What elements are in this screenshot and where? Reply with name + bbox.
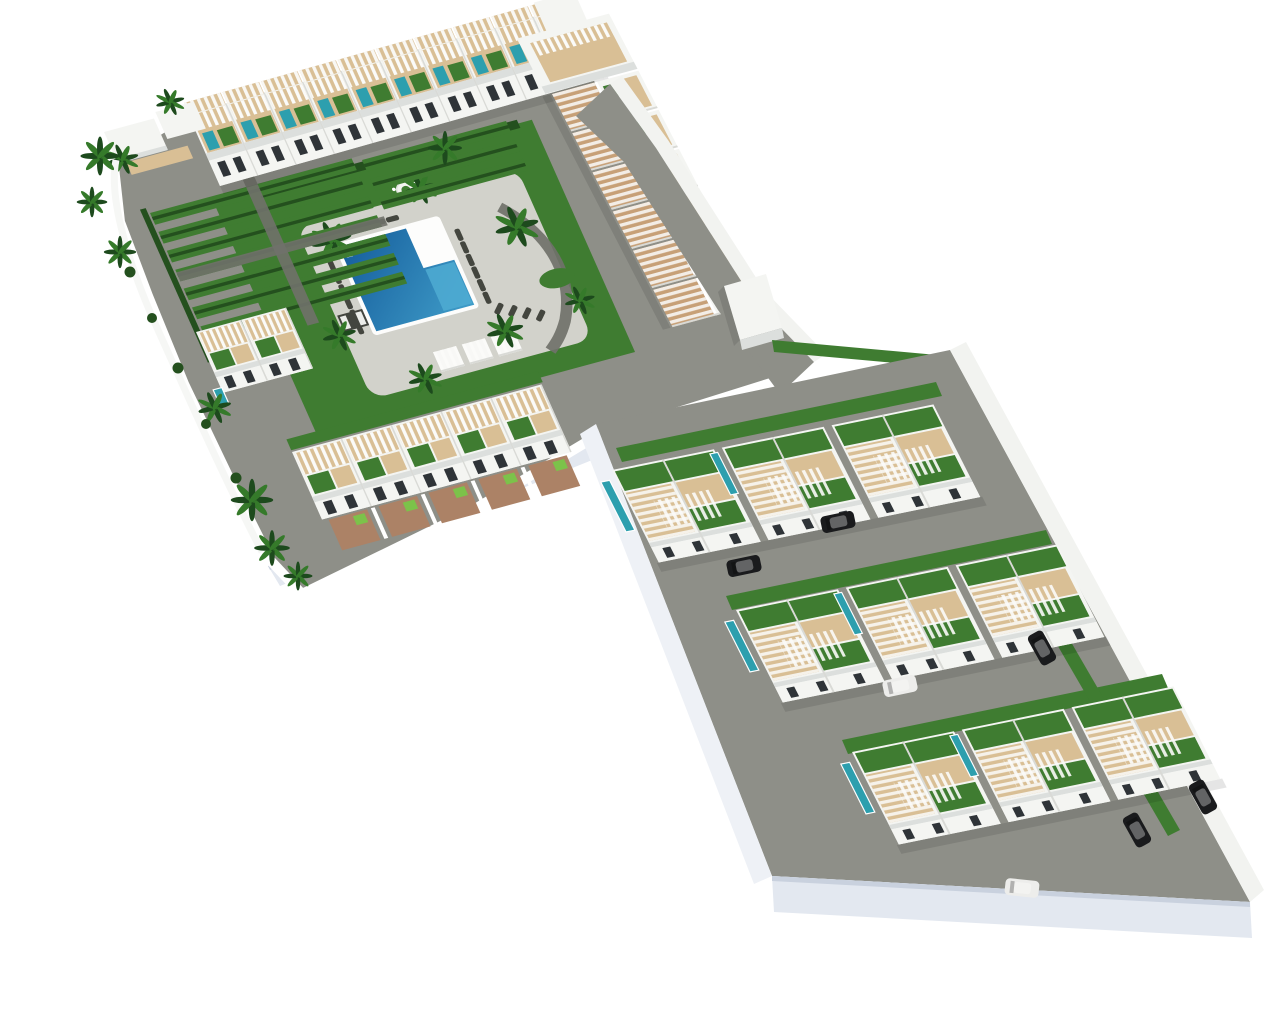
aerial-render (0, 0, 1280, 1009)
parked-car-white (1004, 878, 1040, 898)
site-plan-svg (0, 0, 1280, 1009)
